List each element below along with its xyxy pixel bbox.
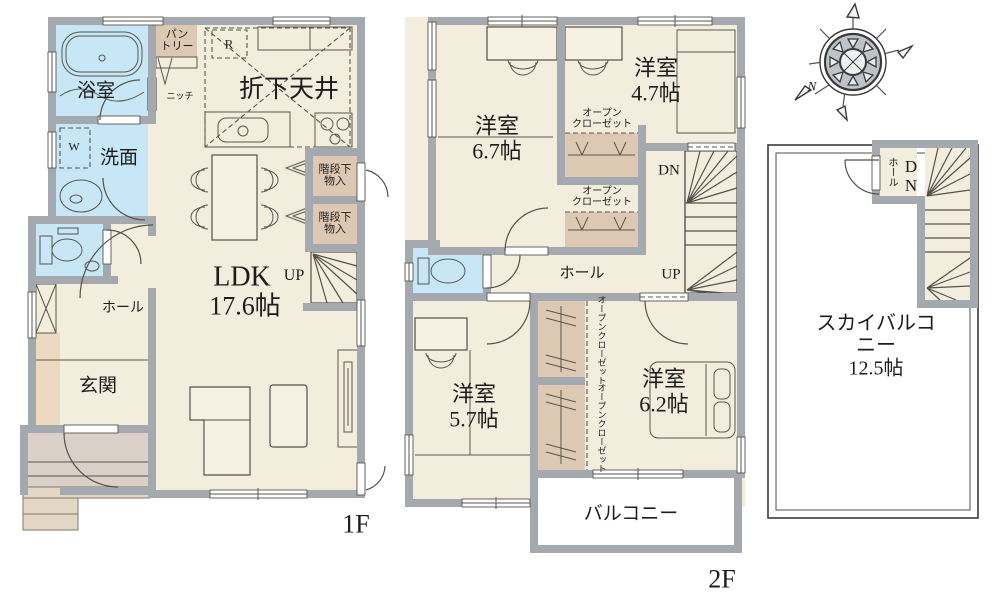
- open-closet-label-1: オープン クローゼット: [572, 108, 632, 130]
- dropped-ceiling-label: 折下天井: [239, 76, 339, 104]
- compass-north-label: N: [808, 80, 817, 95]
- stairs-2f: [685, 151, 737, 293]
- washer-label: W: [68, 140, 79, 153]
- room-62-label: 洋室 6.2帖: [639, 367, 689, 416]
- bathroom-area: [56, 25, 148, 116]
- stairs-1f: [311, 252, 357, 303]
- up2-label: UP: [661, 267, 680, 284]
- sky-dn-label: DN: [903, 157, 920, 195]
- open-closet-vertical-label-1: オープンクローゼット: [597, 295, 606, 385]
- floorplan-canvas: 浴室 パン トリー ニッチ R 折下天井 W 洗面 ホール 玄関 LDK UP …: [0, 0, 999, 609]
- hall2-label: ホール: [559, 266, 604, 283]
- room-47-label: 洋室 4.7帖: [631, 56, 681, 105]
- stair-storage-label-2: 階段下 物入: [319, 212, 352, 237]
- floorplan-drawing: [0, 0, 999, 609]
- porch-step: [23, 514, 78, 530]
- pantry-label: パン トリー: [161, 29, 194, 54]
- floor2-plan: [405, 15, 745, 553]
- living-table: [270, 385, 307, 447]
- sky-hall-label: ホール: [886, 157, 896, 187]
- washroom-label: 洗面: [100, 147, 138, 168]
- stair-storage-label-1: 階段下 物入: [319, 164, 352, 189]
- ldk-label: LDK: [213, 261, 271, 292]
- sky-balcony-label: スカイバルコニー 12.5帖: [815, 312, 938, 379]
- fridge-label: R: [225, 38, 234, 53]
- balcony-label: バルコニー: [584, 503, 679, 524]
- room-67-label: 洋室 6.7帖: [472, 114, 522, 163]
- niche-label: ニッチ: [166, 91, 193, 101]
- porch-step: [23, 498, 78, 514]
- open-closet-vertical-label-2: オープンクローゼット: [597, 383, 606, 473]
- hall1-label: ホール: [102, 301, 144, 317]
- entrance-label: 玄関: [79, 375, 117, 396]
- shoe-cabinet: [36, 333, 60, 425]
- dn2-label: DN: [658, 163, 680, 180]
- floor2-label: 2F: [708, 564, 735, 593]
- toilet1-area: [36, 224, 103, 276]
- floor1-label: 1F: [342, 509, 369, 538]
- washroom-area: [56, 124, 148, 216]
- room-57-label: 洋室 5.7帖: [449, 382, 499, 431]
- open-closet-label-2: オープン クローゼット: [572, 186, 632, 208]
- up1-label: UP: [284, 267, 304, 285]
- compass-rose: [795, 4, 912, 120]
- ldk-size-label: 17.6帖: [209, 291, 281, 320]
- bath-label: 浴室: [77, 80, 115, 101]
